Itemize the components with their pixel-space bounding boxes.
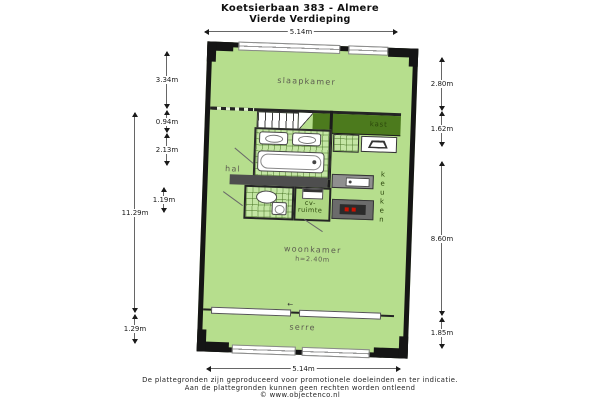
washbasin-icon [292, 132, 321, 146]
dim-right: 2.80m [441, 58, 442, 110]
kitchen-counter [331, 174, 373, 189]
floor-plan: slaapkamer kast [197, 41, 419, 358]
window [238, 41, 340, 54]
extractor-hood-box [361, 136, 398, 153]
wall-opening-dashed [212, 107, 254, 111]
stove-counter [331, 199, 374, 220]
boiler-icon [302, 188, 323, 200]
window [232, 344, 296, 355]
dim-left-outer: 11.29m [134, 113, 135, 312]
dim-right: 1.62m [441, 112, 442, 146]
door-swing-icon [234, 148, 253, 164]
wall-corner [409, 48, 419, 66]
burner-icon [352, 208, 356, 212]
slide-arrow-icon: ← [287, 300, 293, 308]
wall-corner [197, 329, 207, 351]
toilet-icon [271, 202, 286, 216]
tiled-floor-patch [333, 134, 360, 153]
page-subtitle: Vierde Verdieping [0, 14, 600, 25]
room-label-slaapkamer: slaapkamer [211, 74, 402, 90]
room-label-serre: serre [257, 321, 347, 333]
dim-left: 3.34m [166, 52, 167, 108]
room-label-kast: kast [357, 120, 401, 130]
dim-bottom: 5.14m [207, 368, 400, 369]
washbasin-icon [259, 131, 288, 145]
window [348, 45, 388, 55]
bathtub-icon [257, 150, 325, 173]
wall-corner [399, 336, 409, 358]
sliding-door [299, 310, 381, 320]
dim-left: 0.94m [166, 111, 167, 132]
dim-left-outer: 1.29m [134, 315, 135, 343]
page-title: Koetsierbaan 383 - Almere [0, 3, 600, 14]
sliding-door [211, 307, 291, 317]
cv-room: cv- ruimte [293, 187, 331, 222]
burner-icon [345, 207, 349, 211]
dim-left: 1.19m [163, 188, 164, 212]
toilet-room [243, 185, 294, 221]
dim-top: 5.14m [205, 31, 397, 32]
room-label-keuken: keuken [377, 170, 386, 218]
dim-right: 8.60m [441, 162, 442, 315]
room-label-cv: cv- ruimte [296, 200, 325, 215]
room-label-hal: hal [214, 164, 252, 174]
stairs-diagonal [298, 113, 313, 130]
dim-right: 1.85m [441, 318, 442, 348]
footer-copyright: © www.objectenco.nl [0, 391, 600, 399]
window [302, 347, 370, 358]
door-swing-icon [223, 191, 243, 206]
footer-disclaimer-1: De plattegronden zijn geproduceerd voor … [0, 376, 600, 384]
kitchen-sink-icon [346, 177, 370, 187]
stove-icon [340, 204, 366, 215]
wall-corner [207, 41, 217, 61]
floorplan-page: Koetsierbaan 383 - Almere Vierde Verdiep… [0, 0, 600, 400]
dim-left: 2.13m [166, 134, 167, 165]
bathroom [253, 127, 332, 180]
extractor-hood-icon [368, 140, 388, 149]
